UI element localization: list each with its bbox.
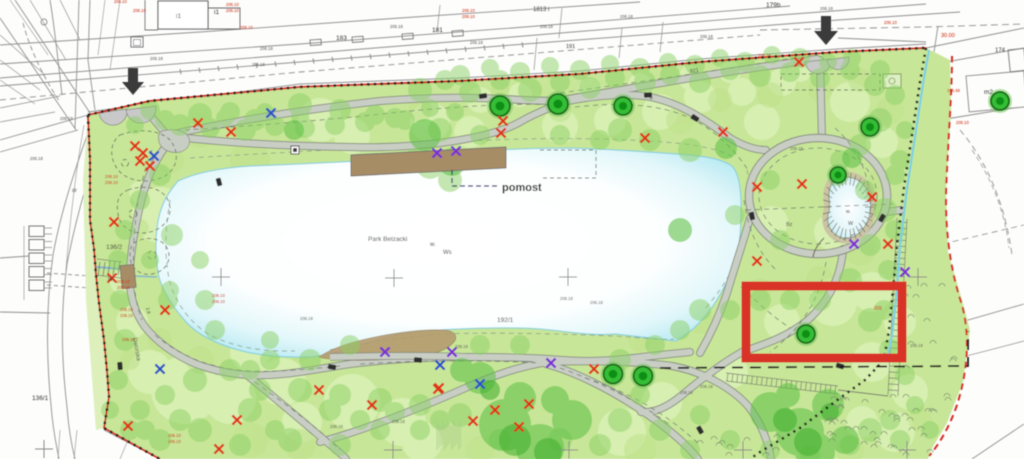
svg-text:206.10: 206.10	[884, 20, 897, 25]
svg-text:206.10: 206.10	[240, 25, 253, 30]
svg-text:206.10: 206.10	[117, 279, 130, 284]
svg-text:w.: w.	[429, 242, 436, 248]
svg-text:206.18: 206.18	[700, 34, 713, 39]
svg-text:206.10: 206.10	[120, 313, 133, 318]
svg-text:206.18: 206.18	[150, 56, 163, 61]
svg-text:dr: dr	[72, 188, 77, 194]
svg-text:206.18: 206.18	[590, 300, 603, 305]
svg-text:206.10: 206.10	[212, 299, 225, 304]
svg-text:181: 181	[432, 27, 443, 34]
svg-text:i1: i1	[176, 13, 181, 20]
svg-text:206.18: 206.18	[260, 46, 273, 51]
svg-text:206.10: 206.10	[114, 0, 127, 4]
svg-text:206.10: 206.10	[168, 439, 181, 444]
svg-text:206.18: 206.18	[790, 146, 803, 151]
svg-text:206.18: 206.18	[30, 156, 43, 161]
svg-text:206.18: 206.18	[910, 343, 923, 348]
svg-text:206.10: 206.10	[212, 293, 225, 298]
svg-text:206.18: 206.18	[60, 116, 73, 121]
svg-text:206.18: 206.18	[700, 384, 713, 389]
svg-text:206.18: 206.18	[455, 344, 468, 349]
svg-text:206.18: 206.18	[390, 24, 403, 29]
svg-text:206.10: 206.10	[226, 8, 239, 13]
svg-text:206.18: 206.18	[470, 40, 483, 45]
svg-text:Ws: Ws	[443, 250, 452, 256]
svg-text:206.10: 206.10	[462, 14, 475, 19]
svg-text:1813 i: 1813 i	[533, 7, 549, 13]
svg-text:183: 183	[336, 35, 347, 42]
svg-text:pomost: pomost	[502, 182, 542, 194]
svg-text:206.18: 206.18	[620, 14, 633, 19]
svg-text:i1: i1	[214, 9, 219, 16]
svg-text:206.18: 206.18	[560, 296, 573, 301]
svg-text:192/1: 192/1	[497, 317, 514, 324]
svg-text:206.10: 206.10	[120, 307, 133, 312]
svg-text:191: 191	[566, 44, 575, 50]
svg-text:179b: 179b	[766, 2, 781, 9]
svg-text:W: W	[848, 221, 854, 227]
svg-text:206.18: 206.18	[540, 24, 553, 29]
svg-text:206.18: 206.18	[392, 419, 405, 424]
svg-text:206.10: 206.10	[133, 8, 146, 13]
svg-text:206.10: 206.10	[122, 337, 135, 342]
svg-text:206.10: 206.10	[956, 120, 969, 125]
svg-text:921: 921	[689, 68, 699, 75]
svg-text:206.49: 206.49	[947, 88, 960, 93]
svg-text:Bz: Bz	[786, 222, 793, 228]
svg-text:30.00: 30.00	[941, 33, 955, 39]
svg-text:206.10: 206.10	[168, 433, 181, 438]
svg-text:m2: m2	[984, 89, 993, 96]
svg-text:Park Belzacki: Park Belzacki	[368, 236, 407, 243]
svg-text:206.10: 206.10	[105, 180, 118, 185]
svg-text:174: 174	[995, 48, 1006, 54]
svg-text:136/2: 136/2	[106, 244, 123, 251]
svg-text:136/1: 136/1	[32, 395, 49, 402]
svg-text:w.: w.	[846, 209, 851, 215]
svg-text:206.18: 206.18	[252, 62, 265, 67]
svg-text:W.: W.	[108, 277, 114, 283]
svg-text:206.10: 206.10	[758, 53, 771, 58]
svg-text:206.10: 206.10	[105, 174, 118, 179]
svg-text:206.18: 206.18	[330, 424, 343, 429]
svg-text:206.10: 206.10	[226, 2, 239, 7]
svg-text:RIII: RIII	[874, 306, 882, 312]
svg-text:206.10: 206.10	[117, 285, 130, 290]
svg-text:206.10: 206.10	[462, 8, 475, 13]
svg-text:206.18: 206.18	[300, 316, 313, 321]
svg-text:206.18: 206.18	[680, 390, 693, 395]
svg-text:206.18: 206.18	[820, 6, 833, 11]
